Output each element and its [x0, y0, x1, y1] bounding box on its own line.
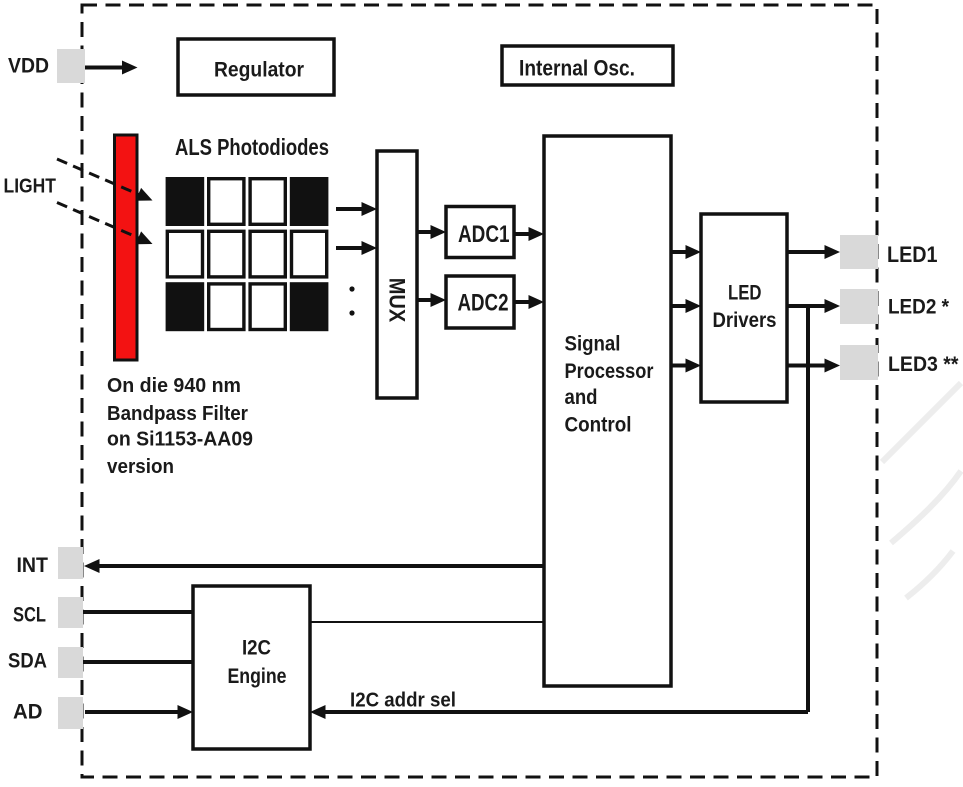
- svg-text:INT: INT: [17, 554, 49, 577]
- svg-text:LED3 **: LED3 **: [888, 353, 959, 376]
- svg-text:version: version: [107, 456, 174, 478]
- svg-text:Processor: Processor: [565, 360, 654, 383]
- svg-text:Signal: Signal: [565, 333, 621, 356]
- svg-text:Bandpass Filter: Bandpass Filter: [107, 403, 248, 425]
- svg-text:AD: AD: [13, 701, 43, 724]
- svg-text:Drivers: Drivers: [713, 309, 777, 332]
- svg-text:on Si1153-AA09: on Si1153-AA09: [107, 429, 253, 451]
- svg-text:Control: Control: [565, 414, 632, 437]
- svg-text:LED2 *: LED2 *: [888, 296, 950, 319]
- svg-text:LED1: LED1: [887, 242, 938, 267]
- svg-text:VDD: VDD: [8, 55, 49, 78]
- svg-text:MUX: MUX: [385, 278, 410, 323]
- svg-text:Engine: Engine: [228, 665, 287, 688]
- svg-text:ALS Photodiodes: ALS Photodiodes: [175, 134, 329, 160]
- svg-text:Internal Osc.: Internal Osc.: [519, 56, 635, 81]
- svg-text:LIGHT: LIGHT: [4, 176, 57, 198]
- svg-text:ADC1: ADC1: [458, 221, 510, 248]
- svg-text:and: and: [565, 386, 598, 409]
- svg-text:SDA: SDA: [8, 650, 47, 673]
- svg-text:ADC2: ADC2: [458, 290, 509, 317]
- svg-text:Regulator: Regulator: [214, 59, 304, 82]
- svg-text:LED: LED: [728, 281, 762, 304]
- svg-text:On die 940 nm: On die 940 nm: [107, 375, 241, 397]
- svg-text:I2C: I2C: [242, 637, 271, 660]
- svg-text:SCL: SCL: [13, 603, 46, 626]
- svg-text:I2C addr sel: I2C addr sel: [350, 690, 456, 712]
